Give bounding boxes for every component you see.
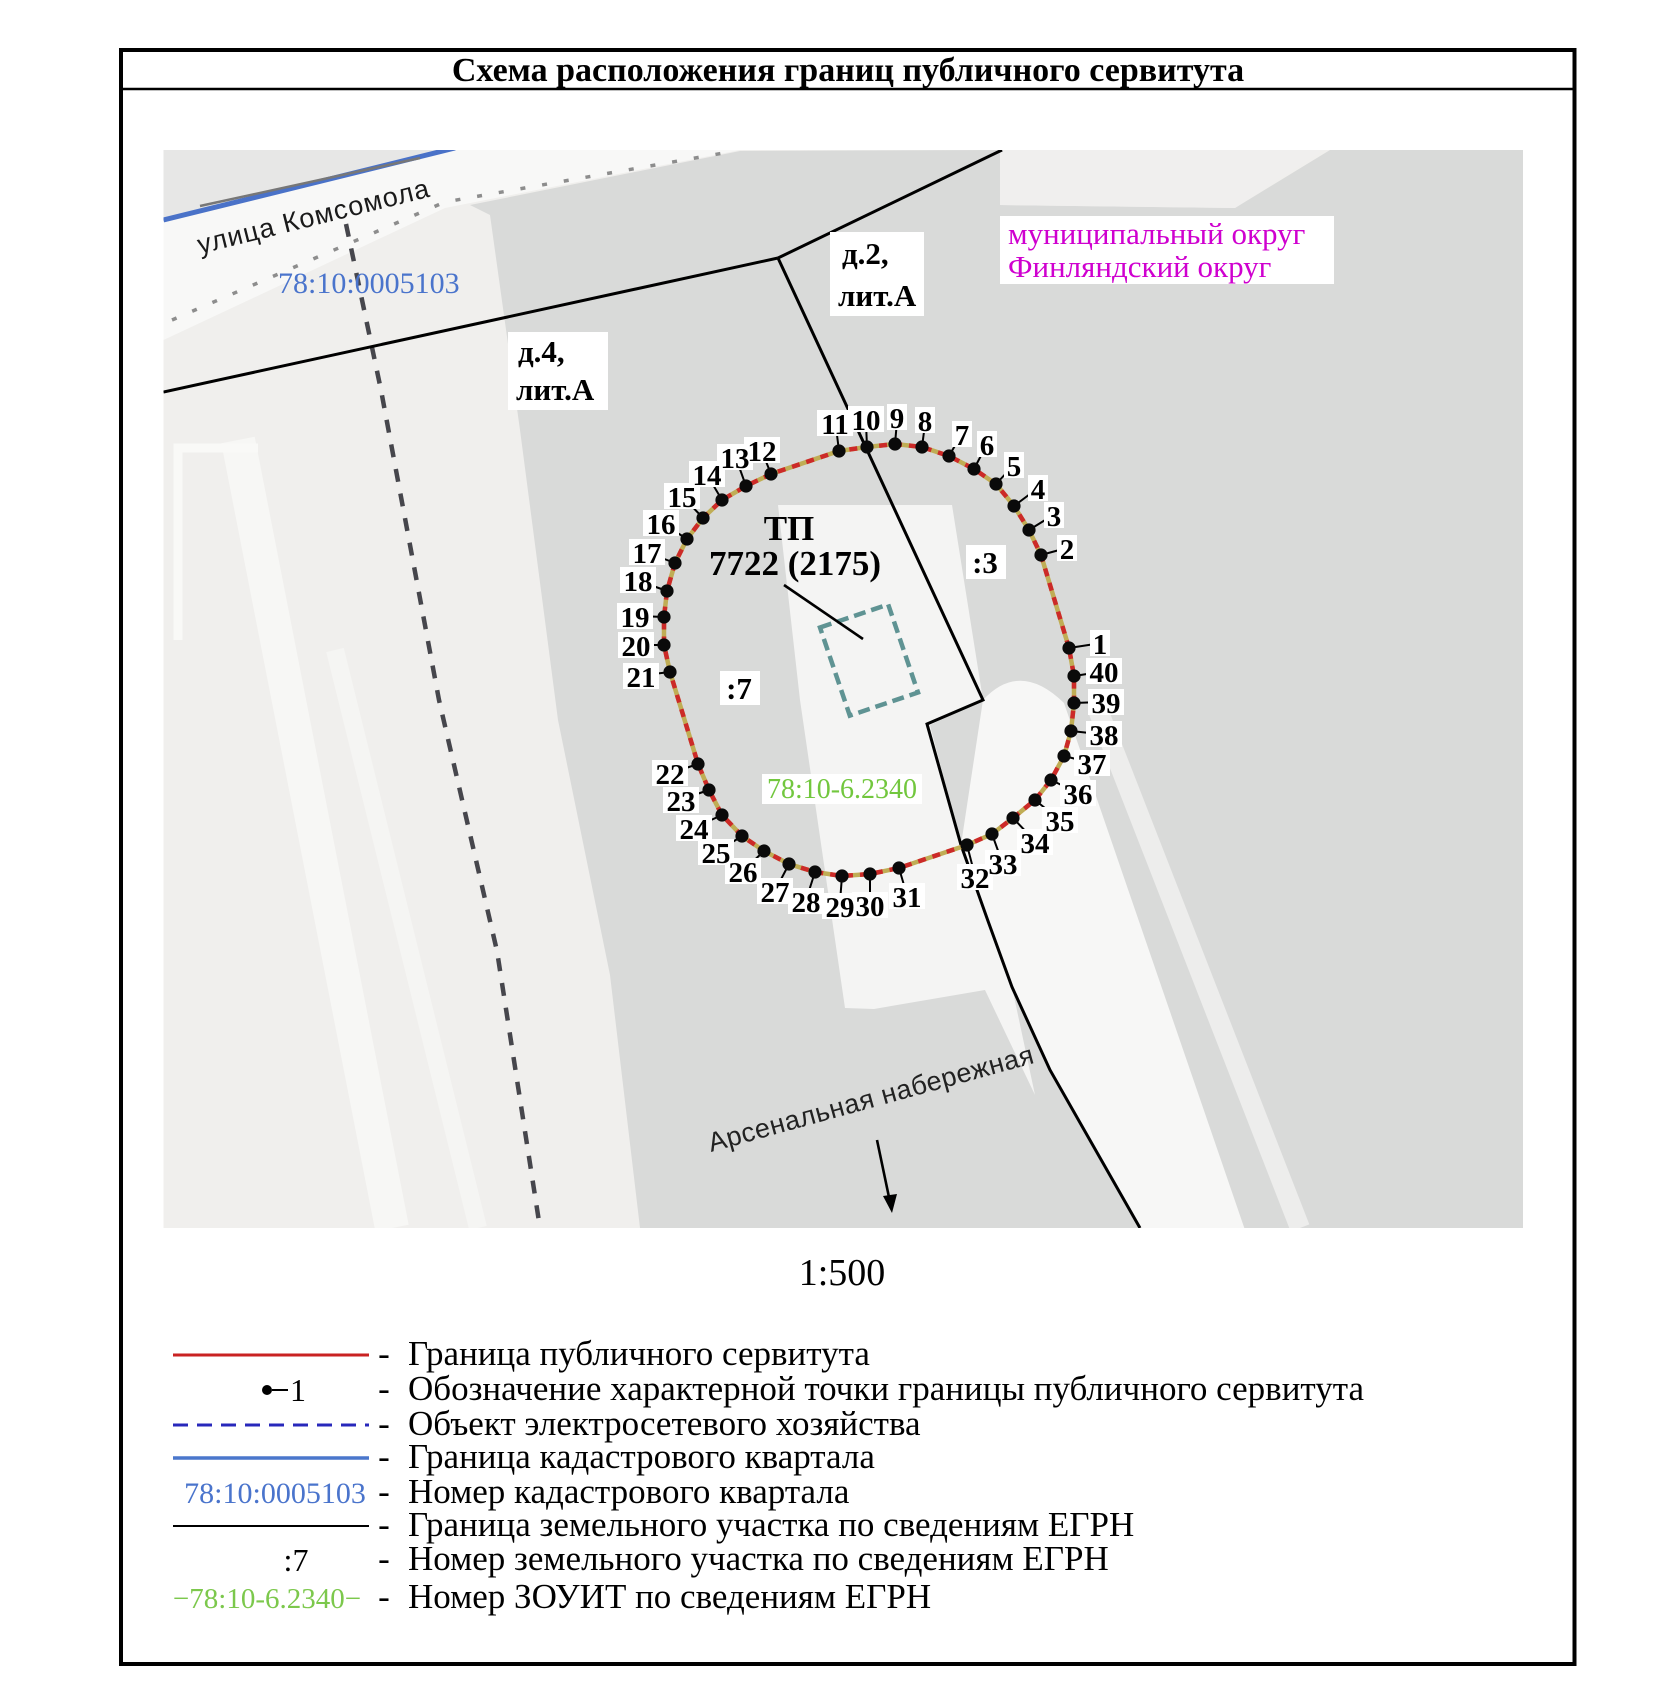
- svg-text:5: 5: [1007, 451, 1022, 483]
- svg-text:36: 36: [1064, 779, 1093, 811]
- svg-text:39: 39: [1092, 688, 1121, 720]
- svg-text:-: -: [378, 1334, 390, 1373]
- svg-text:д.2,: д.2,: [842, 236, 889, 271]
- svg-text::7: :7: [284, 1542, 309, 1578]
- svg-text:27: 27: [761, 877, 790, 909]
- svg-text:Номер ЗОУИТ по сведениям ЕГРН: Номер ЗОУИТ по сведениям ЕГРН: [408, 1577, 931, 1616]
- svg-text:32: 32: [961, 863, 990, 895]
- svg-text:4: 4: [1031, 474, 1046, 506]
- svg-text:ТП: ТП: [764, 509, 815, 548]
- svg-text:7: 7: [955, 420, 970, 452]
- svg-text:10: 10: [852, 405, 881, 437]
- svg-text:33: 33: [989, 849, 1018, 881]
- svg-text:Номер земельного участка по св: Номер земельного участка по сведениям ЕГ…: [408, 1539, 1109, 1578]
- svg-text:25: 25: [702, 838, 731, 870]
- svg-text:19: 19: [621, 602, 650, 634]
- svg-text:3: 3: [1047, 501, 1062, 533]
- svg-text:Схема расположения границ публ: Схема расположения границ публичного сер…: [452, 52, 1244, 89]
- svg-text:26: 26: [729, 857, 758, 889]
- svg-text:37: 37: [1078, 749, 1107, 781]
- svg-text:Финляндский округ: Финляндский округ: [1008, 249, 1271, 284]
- svg-text:78:10:0005103: 78:10:0005103: [184, 1477, 366, 1510]
- svg-text:8: 8: [918, 406, 933, 438]
- svg-text:12: 12: [748, 436, 777, 468]
- svg-text:лит.А: лит.А: [516, 372, 595, 407]
- svg-text:20: 20: [622, 631, 651, 663]
- svg-text:6: 6: [980, 430, 995, 462]
- svg-text:18: 18: [624, 566, 653, 598]
- svg-text:30: 30: [856, 891, 885, 923]
- svg-text:38: 38: [1090, 720, 1119, 752]
- svg-text::3: :3: [972, 545, 998, 580]
- svg-text:-: -: [378, 1437, 390, 1476]
- svg-text:78:10-6.2340: 78:10-6.2340: [767, 774, 917, 805]
- svg-text:-: -: [378, 1539, 390, 1578]
- svg-text:Граница публичного сервитута: Граница публичного сервитута: [408, 1334, 870, 1373]
- svg-text:31: 31: [893, 882, 922, 914]
- svg-text:д.4,: д.4,: [518, 334, 565, 369]
- svg-text:-: -: [378, 1369, 390, 1408]
- svg-text:78:10:0005103: 78:10:0005103: [278, 267, 460, 300]
- svg-text:2: 2: [1060, 534, 1075, 566]
- svg-text:9: 9: [890, 403, 905, 435]
- svg-text:−78:10-6.2340−: −78:10-6.2340−: [173, 1583, 361, 1615]
- svg-text:1:500: 1:500: [799, 1252, 886, 1294]
- svg-text:лит.А: лит.А: [838, 278, 917, 313]
- svg-text:13: 13: [721, 443, 750, 475]
- svg-text:40: 40: [1090, 657, 1119, 689]
- svg-text:-: -: [378, 1577, 390, 1616]
- svg-text:муниципальный округ: муниципальный округ: [1008, 216, 1305, 251]
- svg-text:14: 14: [693, 460, 722, 492]
- svg-text:1: 1: [290, 1372, 306, 1408]
- svg-text:21: 21: [627, 662, 656, 694]
- svg-text:7722 (2175): 7722 (2175): [709, 544, 881, 583]
- svg-text:Граница кадастрового квартала: Граница кадастрового квартала: [408, 1437, 875, 1476]
- svg-text:29: 29: [826, 892, 855, 924]
- svg-text::7: :7: [726, 671, 752, 706]
- svg-text:11: 11: [821, 409, 848, 441]
- svg-text:16: 16: [647, 509, 676, 541]
- svg-text:Обозначение характерной точки: Обозначение характерной точки границы пу…: [408, 1369, 1364, 1408]
- svg-text:28: 28: [792, 887, 821, 919]
